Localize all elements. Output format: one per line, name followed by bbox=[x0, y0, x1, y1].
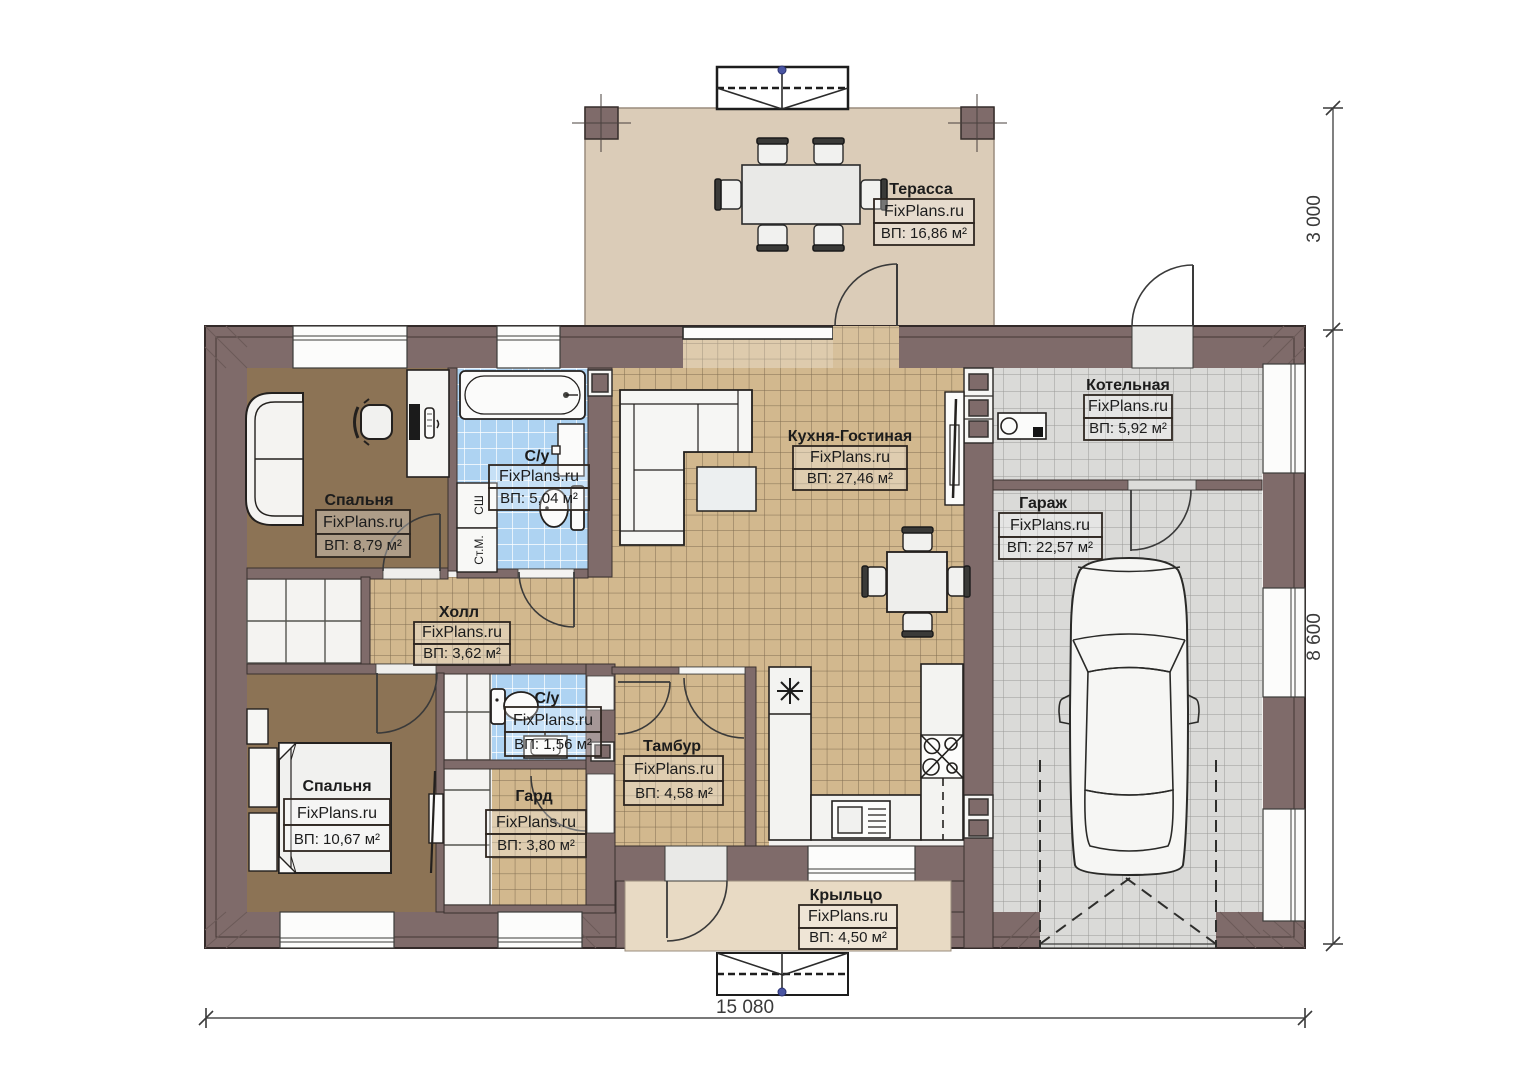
svg-text:FixPlans.ru: FixPlans.ru bbox=[810, 449, 890, 466]
svg-text:Спальня: Спальня bbox=[324, 492, 393, 509]
svg-text:СШ: СШ bbox=[472, 495, 486, 515]
svg-text:ВП: 5,92 м²: ВП: 5,92 м² bbox=[1089, 420, 1167, 437]
svg-text:ВП: 3,80 м²: ВП: 3,80 м² bbox=[497, 837, 575, 854]
svg-text:ВП: 4,50 м²: ВП: 4,50 м² bbox=[809, 929, 887, 946]
svg-text:Тамбур: Тамбур bbox=[643, 738, 701, 755]
svg-text:15 080: 15 080 bbox=[716, 997, 774, 1018]
svg-text:Холл: Холл bbox=[439, 604, 479, 621]
svg-text:Спальня: Спальня bbox=[302, 778, 371, 795]
svg-text:С/у: С/у bbox=[535, 690, 560, 707]
svg-text:FixPlans.ru: FixPlans.ru bbox=[422, 624, 502, 641]
svg-text:Кухня-Гостиная: Кухня-Гостиная bbox=[788, 428, 912, 445]
svg-text:ВП: 5,04 м²: ВП: 5,04 м² bbox=[500, 490, 578, 507]
svg-text:FixPlans.ru: FixPlans.ru bbox=[499, 468, 579, 485]
svg-text:FixPlans.ru: FixPlans.ru bbox=[1088, 398, 1168, 415]
svg-text:ВП: 16,86 м²: ВП: 16,86 м² bbox=[881, 225, 967, 242]
svg-text:FixPlans.ru: FixPlans.ru bbox=[513, 712, 593, 729]
svg-text:ВП: 27,46 м²: ВП: 27,46 м² bbox=[807, 470, 893, 487]
svg-text:ВП: 22,57 м²: ВП: 22,57 м² bbox=[1007, 539, 1093, 556]
svg-text:ВП: 10,67 м²: ВП: 10,67 м² bbox=[294, 831, 380, 848]
svg-text:FixPlans.ru: FixPlans.ru bbox=[297, 805, 377, 822]
svg-text:Крыльцо: Крыльцо bbox=[810, 887, 883, 904]
svg-text:С/у: С/у bbox=[525, 448, 550, 465]
svg-text:ВП: 3,62 м²: ВП: 3,62 м² bbox=[423, 645, 501, 662]
svg-text:8 600: 8 600 bbox=[1304, 613, 1325, 661]
svg-text:FixPlans.ru: FixPlans.ru bbox=[323, 514, 403, 531]
svg-text:3 000: 3 000 bbox=[1304, 195, 1325, 243]
svg-text:Котельная: Котельная bbox=[1086, 377, 1170, 394]
svg-text:Гард: Гард bbox=[515, 788, 552, 805]
svg-text:ВП: 8,79 м²: ВП: 8,79 м² bbox=[324, 537, 402, 554]
svg-text:FixPlans.ru: FixPlans.ru bbox=[1010, 517, 1090, 534]
svg-text:Ст.М.: Ст.М. bbox=[472, 535, 486, 565]
svg-text:ВП: 4,58 м²: ВП: 4,58 м² bbox=[635, 785, 713, 802]
svg-text:Терасса: Терасса bbox=[889, 181, 953, 198]
svg-text:ВП: 1,56 м²: ВП: 1,56 м² bbox=[514, 736, 592, 753]
svg-text:FixPlans.ru: FixPlans.ru bbox=[808, 908, 888, 925]
svg-text:Гараж: Гараж bbox=[1019, 495, 1067, 512]
svg-text:FixPlans.ru: FixPlans.ru bbox=[884, 203, 964, 220]
svg-text:FixPlans.ru: FixPlans.ru bbox=[496, 814, 576, 831]
svg-text:FixPlans.ru: FixPlans.ru bbox=[634, 761, 714, 778]
